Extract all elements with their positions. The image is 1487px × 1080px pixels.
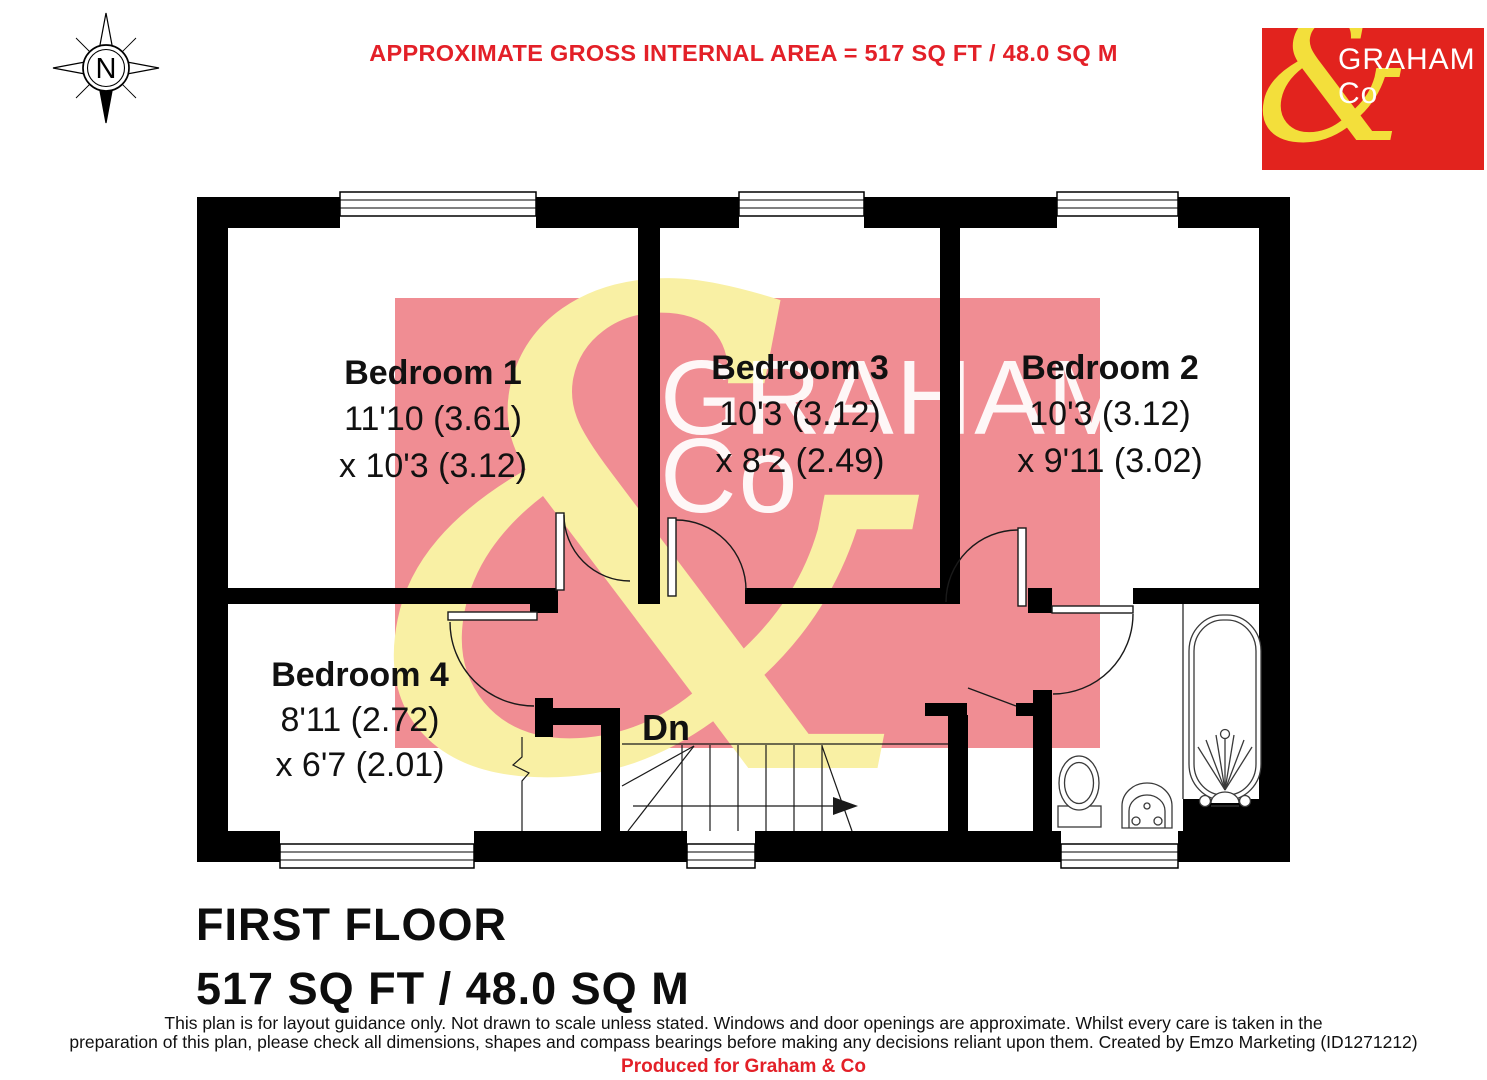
svg-text:Bedroom 1: Bedroom 1: [344, 354, 522, 392]
svg-text:10'3 (3.12): 10'3 (3.12): [1029, 395, 1190, 433]
svg-text:Bedroom 4: Bedroom 4: [271, 656, 449, 694]
window-bathroom: [1061, 844, 1178, 868]
svg-text:Bedroom 2: Bedroom 2: [1021, 349, 1199, 387]
floor-title: FIRST FLOOR 517 SQ FT / 48.0 SQ M: [196, 893, 690, 1021]
svg-text:x 8'2 (2.49): x 8'2 (2.49): [715, 442, 884, 480]
svg-text:10'3 (3.12): 10'3 (3.12): [719, 395, 880, 433]
svg-text:11'10 (3.61): 11'10 (3.61): [344, 400, 522, 438]
floor-name: FIRST FLOOR: [196, 893, 690, 957]
svg-text:x 9'11 (3.02): x 9'11 (3.02): [1017, 442, 1202, 480]
room-label-bedroom-1: Bedroom 1 11'10 (3.61) x 10'3 (3.12): [339, 354, 527, 485]
window-bedroom3: [739, 192, 864, 216]
window-stairwell: [687, 844, 755, 868]
sink-icon: [1122, 783, 1172, 828]
stairs-down-label: Dn: [642, 707, 690, 748]
window-bedroom4: [280, 844, 474, 868]
room-label-bedroom-2: Bedroom 2 10'3 (3.12) x 9'11 (3.02): [1017, 349, 1202, 480]
window-bedroom2: [1057, 192, 1178, 216]
svg-text:x 6'7 (2.01): x 6'7 (2.01): [275, 746, 444, 784]
room-label-bedroom-3: Bedroom 3 10'3 (3.12) x 8'2 (2.49): [711, 349, 889, 480]
floor-area: 517 SQ FT / 48.0 SQ M: [196, 957, 690, 1021]
toilet-icon: [1058, 756, 1101, 827]
room-label-bedroom-4: Bedroom 4 8'11 (2.72) x 6'7 (2.01): [271, 656, 449, 784]
svg-text:x 10'3 (3.12): x 10'3 (3.12): [339, 447, 527, 485]
window-bedroom1: [340, 192, 536, 216]
disclaimer-line-1: This plan is for layout guidance only. N…: [0, 1014, 1487, 1033]
floorplan-page: N APPROXIMATE GROSS INTERNAL AREA = 517 …: [0, 0, 1487, 1080]
disclaimer-line-2: preparation of this plan, please check a…: [0, 1033, 1487, 1052]
svg-text:8'11 (2.72): 8'11 (2.72): [281, 701, 440, 739]
watermark-ampersand-icon: &: [368, 155, 956, 924]
svg-text:Bedroom 3: Bedroom 3: [711, 349, 889, 387]
bathtub-icon: [1189, 615, 1261, 807]
produced-for-label: Produced for Graham & Co: [0, 1056, 1487, 1078]
disclaimer-text: This plan is for layout guidance only. N…: [0, 1014, 1487, 1051]
